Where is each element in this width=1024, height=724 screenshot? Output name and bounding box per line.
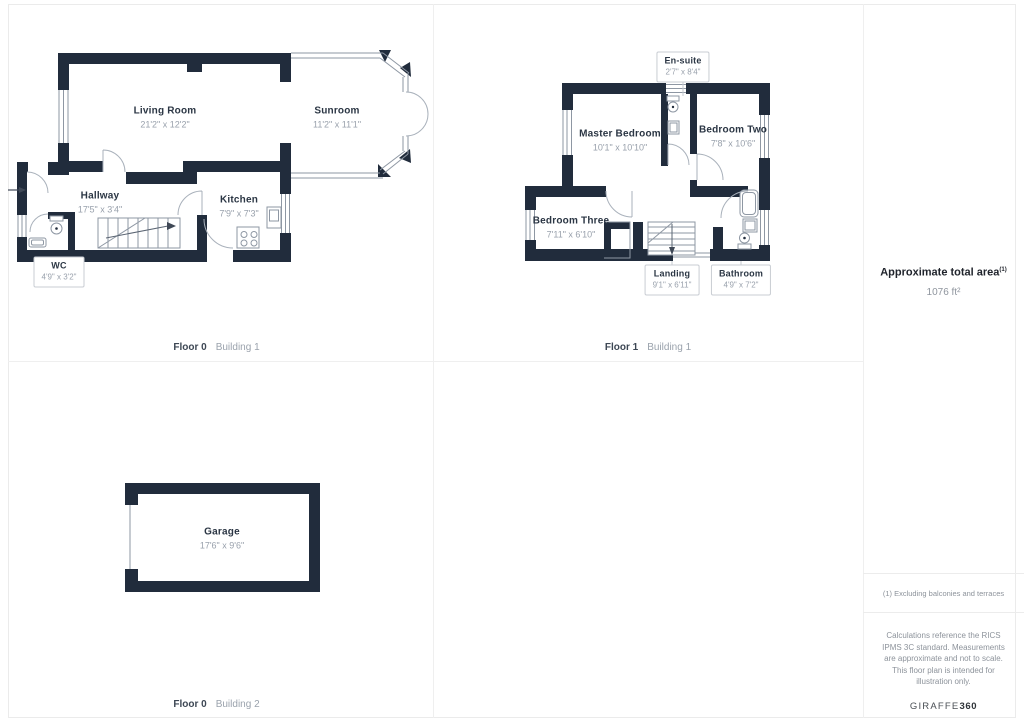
giraffe360-logo: GIRAFFE360 (877, 701, 1010, 712)
room-label-garage: Garage 17'6" x 9'6" (200, 527, 244, 552)
floor-label-floor0-building2: Floor 0Building 2 (0, 699, 433, 711)
room-label-wc: WC 4'9" x 3'2" (34, 257, 85, 288)
room-label-bedroom-two: Bedroom Two 7'8" x 10'6" (699, 125, 767, 150)
room-label-sunroom: Sunroom 11'2" x 11'1" (313, 106, 361, 131)
room-label-landing: Landing 9'1" x 6'11" (645, 265, 700, 296)
disclaimer-text: Calculations reference the RICS IPMS 3C … (877, 630, 1010, 688)
door-arcs (606, 144, 748, 218)
total-area-block: Approximate total area(1) 1076 ft² (863, 263, 1024, 298)
footnote-ref: (1) (999, 267, 1006, 273)
stairs-icon (648, 222, 695, 255)
floor-label-floor0-building1: Floor 0Building 1 (0, 342, 433, 354)
total-area-title: Approximate total area(1) (863, 263, 1024, 280)
footnote-block: (1) Excluding balconies and terraces (863, 573, 1024, 613)
room-label-master-bedroom: Master Bedroom 10'1" x 10'10" (579, 129, 661, 154)
floorplan-section-floor0-building1: Living Room 21'2" x 12'2" Sunroom 11'2" … (0, 0, 433, 361)
room-label-hallway: Hallway 17'5" x 3'4" (78, 191, 122, 216)
stairs-icon (98, 218, 180, 248)
room-label-en-suite: En-suite 2'7" x 8'4" (656, 52, 709, 83)
bathroom-fixtures (738, 190, 758, 249)
room-label-bathroom: Bathroom 4'9" x 7'2" (711, 265, 771, 296)
total-area-value: 1076 ft² (863, 287, 1024, 298)
floorplan-section-floor0-building2: Garage 17'6" x 9'6" Floor 0Building 2 (0, 361, 433, 718)
room-label-kitchen: Kitchen 7'9" x 7'3" (219, 195, 258, 220)
disclaimer-block: Calculations reference the RICS IPMS 3C … (863, 612, 1024, 724)
ensuite-fixtures (667, 96, 679, 134)
floor-label-floor1-building1: Floor 1Building 1 (433, 342, 863, 354)
floorplan-section-floor1-building1: En-suite 2'7" x 8'4" Master Bedroom 10'1… (433, 0, 863, 361)
window-lines (18, 53, 409, 237)
summary-sidebar: Approximate total area(1) 1076 ft² (1) E… (863, 0, 1024, 724)
floorplan-drawing-floor0-building1 (0, 0, 433, 361)
footnote-text: (1) Excluding balconies and terraces (877, 589, 1010, 598)
floorplan-drawing-floor1-building1 (433, 0, 863, 361)
room-label-bedroom-three: Bedroom Three 7'11" x 6'10" (533, 216, 610, 241)
room-label-living-room: Living Room 21'2" x 12'2" (134, 106, 197, 131)
